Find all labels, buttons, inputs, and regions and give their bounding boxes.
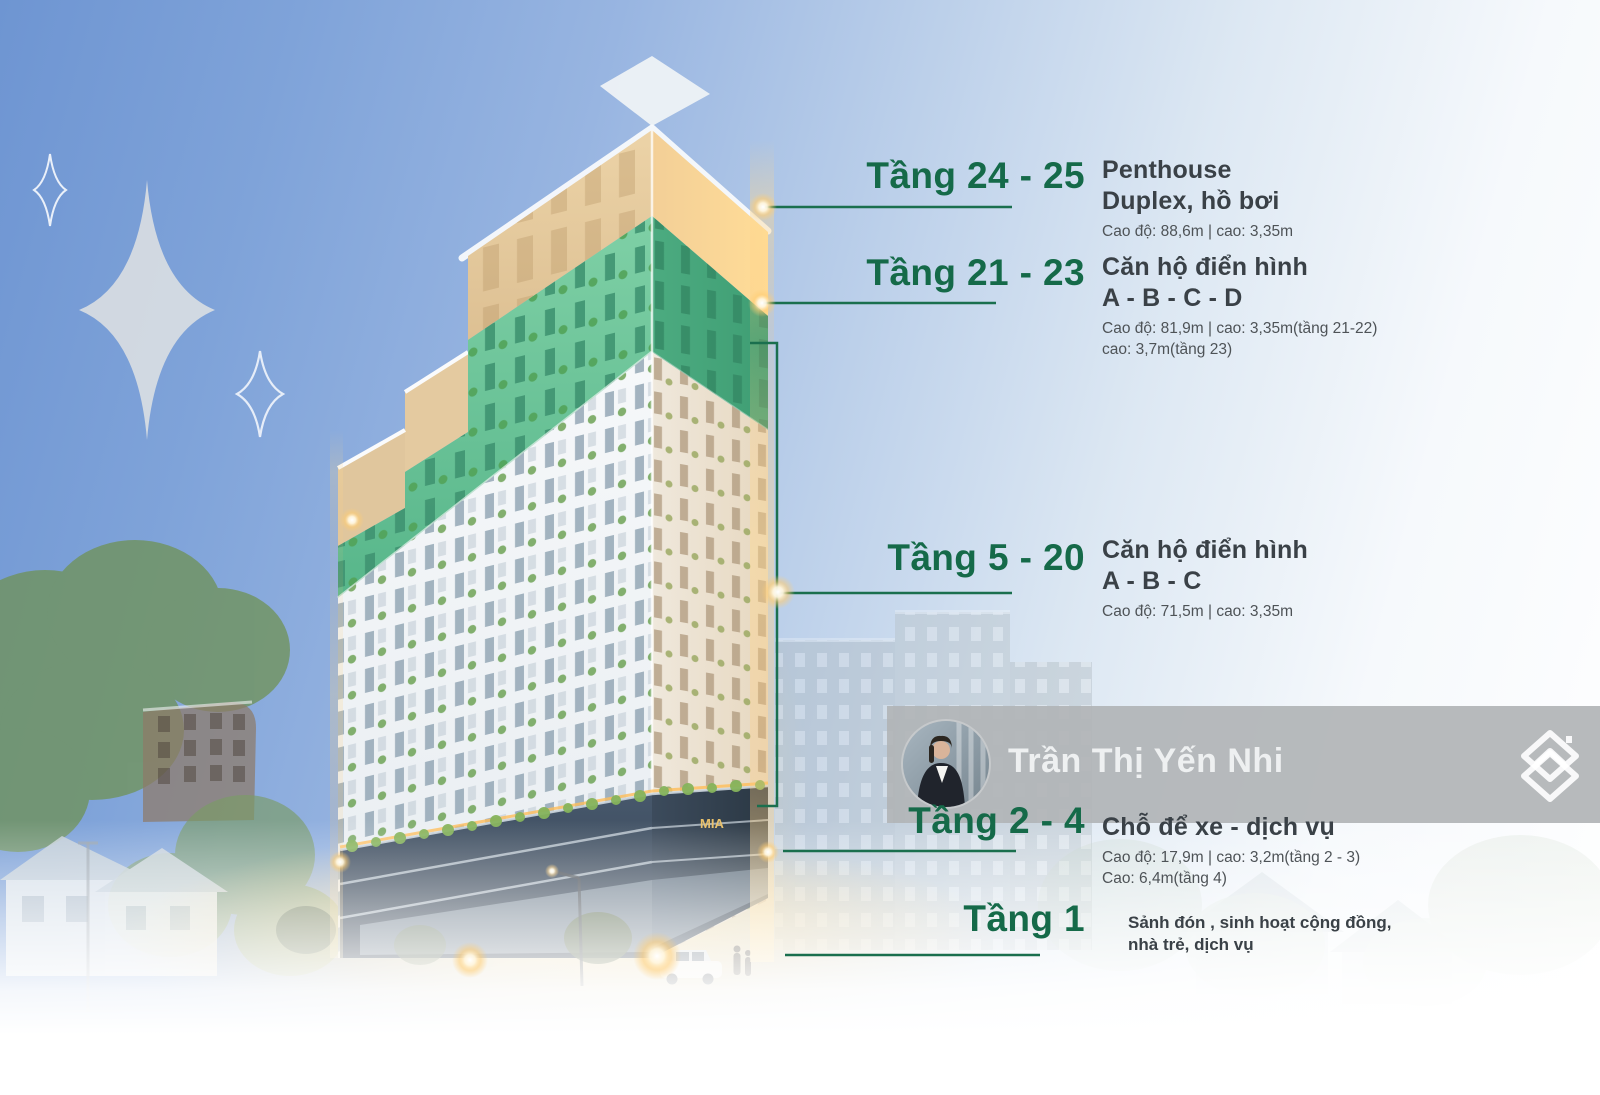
house-chevrons-icon [1506,722,1594,818]
floor-label-21-23: Tầng 21 - 23 [853,252,1085,294]
floor-title: A - B - C [1102,566,1308,597]
floor-title: Chỗ để xe - dịch vụ [1102,812,1360,843]
floor-detail: Cao độ: 17,9m | cao: 3,2m(tầng 2 - 3) [1102,847,1360,868]
floor-detail: Cao: 6,4m(tầng 4) [1102,868,1360,889]
floor-label-24-25: Tầng 24 - 25 [853,155,1085,197]
floor-detail: Cao độ: 71,5m | cao: 3,35m [1102,601,1308,622]
floor-detail: nhà trẻ, dịch vụ [1128,934,1391,956]
floor-detail: Sảnh đón , sinh hoạt cộng đồng, [1128,912,1391,934]
floor-info-1: Sảnh đón , sinh hoạt cộng đồng, nhà trẻ,… [1128,912,1391,956]
floor-label-2-4: Tầng 2 - 4 [853,800,1085,842]
floor-info-2-4: Chỗ để xe - dịch vụ Cao độ: 17,9m | cao:… [1102,812,1360,889]
agent-photo [903,721,989,807]
floor-info-5-20: Căn hộ điển hình A - B - C Cao độ: 71,5m… [1102,535,1308,622]
floor-info-21-23: Căn hộ điển hình A - B - C - D Cao độ: 8… [1102,252,1377,360]
poster: MIA [0,0,1600,1095]
floor-label-1: Tầng 1 [853,898,1085,940]
floor-detail: Cao độ: 81,9m | cao: 3,35m(tầng 21-22) [1102,318,1377,339]
floor-title: Duplex, hồ bơi [1102,186,1293,217]
floor-title: Căn hộ điển hình [1102,252,1377,283]
floor-title: Penthouse [1102,155,1293,186]
floor-detail: cao: 3,7m(tầng 23) [1102,339,1377,360]
floor-title: A - B - C - D [1102,283,1377,314]
floor-title: Căn hộ điển hình [1102,535,1308,566]
avatar [903,721,989,807]
floor-label-5-20: Tầng 5 - 20 [853,537,1085,579]
floor-detail: Cao độ: 88,6m | cao: 3,35m [1102,221,1293,242]
floor-info-24-25: Penthouse Duplex, hồ bơi Cao độ: 88,6m |… [1102,155,1293,242]
sparkle-decorations [34,154,283,440]
agent-name: Trần Thị Yến Nhi [1008,742,1284,781]
